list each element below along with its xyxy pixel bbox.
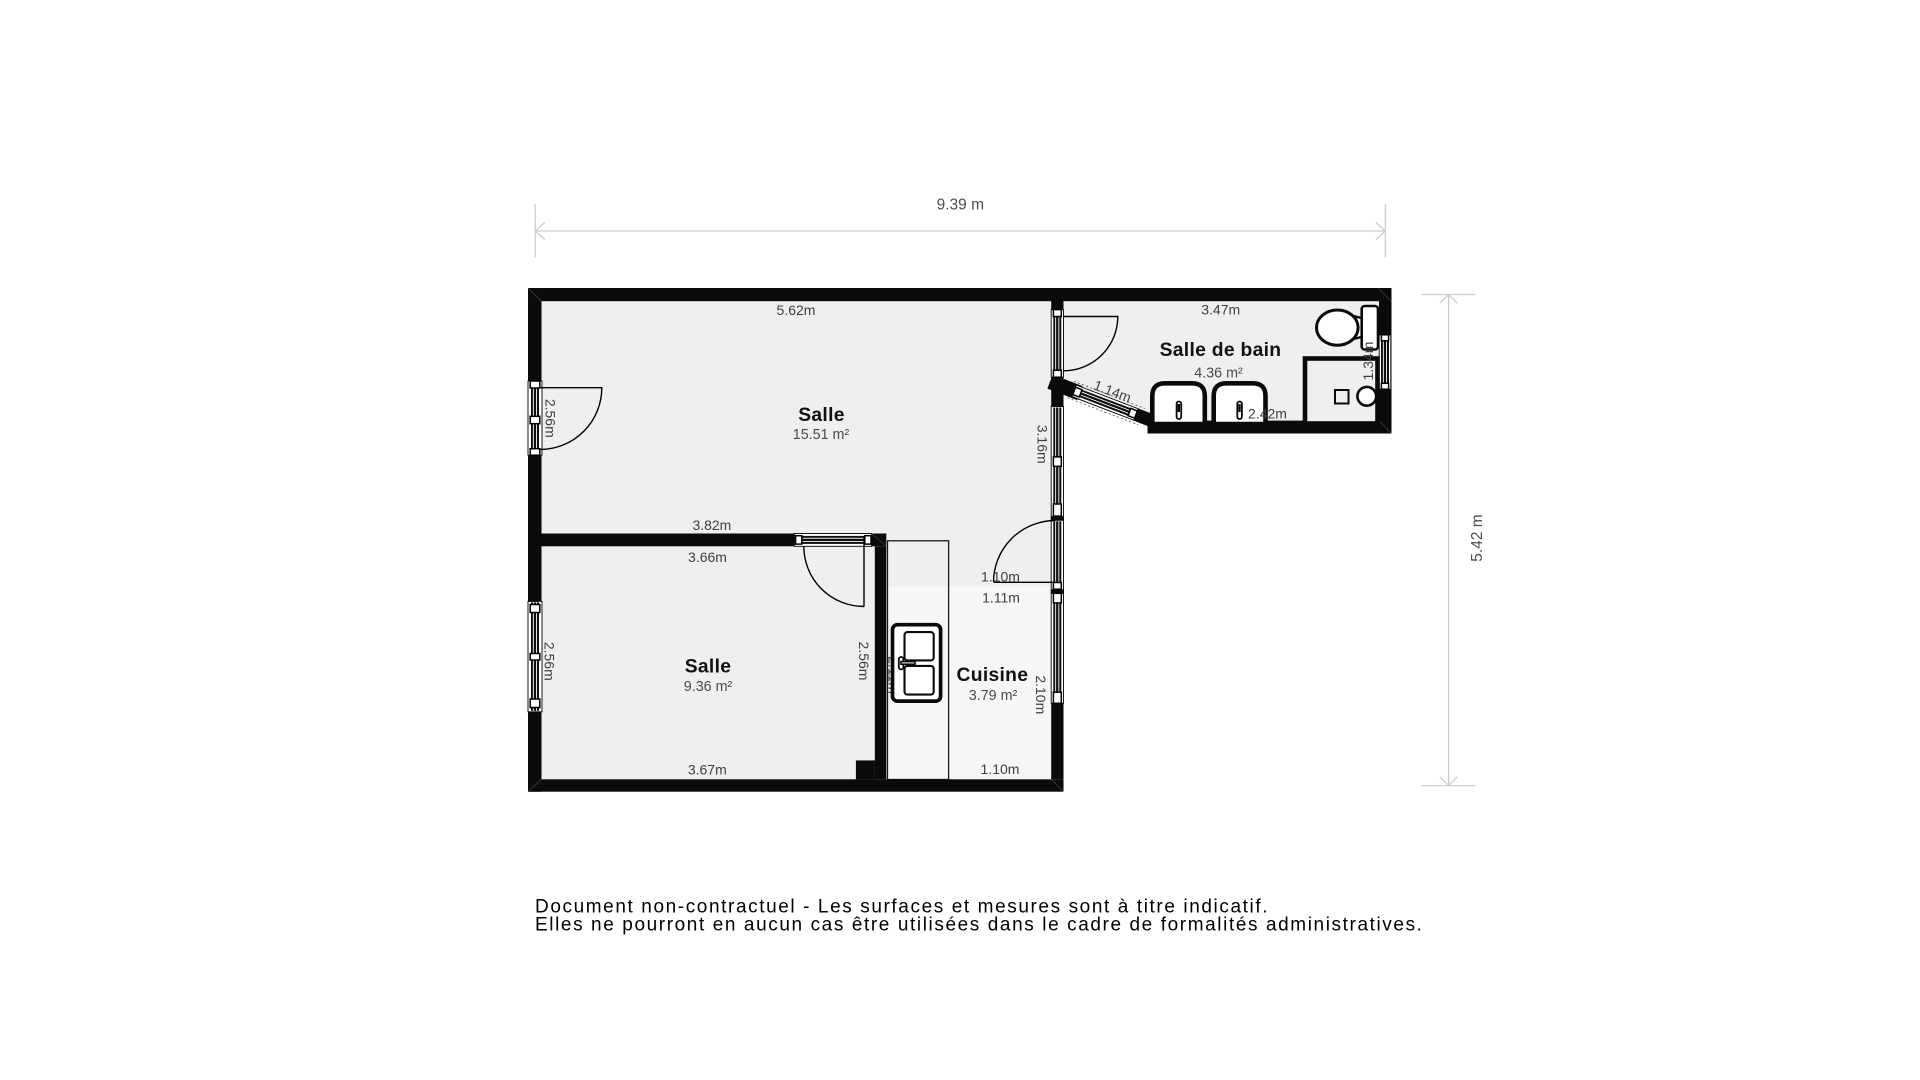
svg-text:3.67m: 3.67m: [688, 762, 727, 778]
svg-text:2.56m: 2.56m: [543, 399, 559, 438]
svg-text:4.36 m²: 4.36 m²: [1194, 365, 1243, 381]
svg-text:9.36 m²: 9.36 m²: [684, 679, 733, 695]
svg-text:2.56m: 2.56m: [856, 642, 872, 681]
svg-text:3.16m: 3.16m: [1034, 425, 1050, 464]
svg-text:2.42m: 2.42m: [1248, 406, 1287, 422]
svg-text:15.51 m²: 15.51 m²: [793, 427, 850, 443]
svg-text:3.79 m²: 3.79 m²: [969, 688, 1018, 704]
svg-text:Salle de bain: Salle de bain: [1160, 340, 1282, 361]
svg-text:2.10m: 2.10m: [1033, 675, 1049, 714]
svg-text:Salle: Salle: [798, 405, 845, 426]
svg-text:1.10m: 1.10m: [981, 761, 1020, 777]
svg-text:1.11m: 1.11m: [982, 589, 1020, 605]
svg-text:9.39 m: 9.39 m: [937, 196, 984, 213]
svg-text:3.47m: 3.47m: [1201, 301, 1240, 317]
svg-text:Elles ne pourront en aucun cas: Elles ne pourront en aucun cas être util…: [535, 915, 1424, 936]
svg-text:2.56m: 2.56m: [542, 642, 558, 681]
svg-text:1.34m: 1.34m: [1360, 342, 1376, 381]
svg-text:Salle: Salle: [685, 657, 732, 678]
svg-text:3.66m: 3.66m: [688, 549, 727, 565]
svg-text:1.10m: 1.10m: [981, 568, 1020, 584]
svg-text:5.62m: 5.62m: [777, 302, 816, 318]
svg-text:3.82m: 3.82m: [692, 517, 731, 533]
svg-text:5.42 m: 5.42 m: [1469, 514, 1486, 561]
svg-text:Cuisine: Cuisine: [957, 665, 1029, 686]
